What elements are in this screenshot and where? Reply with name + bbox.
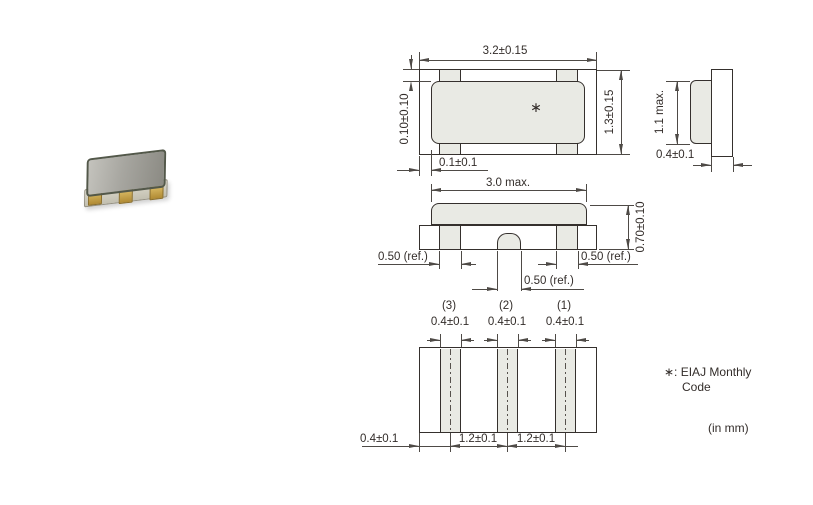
bottom-view-pad1-width-dim: 0.4±0.1 xyxy=(539,316,591,329)
bottom-view-pad3-width-dim: 0.4±0.1 xyxy=(424,316,476,329)
arrow-up-icon xyxy=(409,81,413,91)
arrow-right-icon xyxy=(409,168,419,172)
drawing-canvas: 3.2±0.15 ∗ 0.10±0.10 0.1±0.1 1.3±0.15 1.… xyxy=(0,0,813,505)
ext-line xyxy=(555,334,556,347)
ext-line xyxy=(597,70,630,71)
centerline xyxy=(507,349,508,431)
ext-line xyxy=(439,251,440,269)
dim-line xyxy=(621,70,622,154)
ext-line xyxy=(497,251,498,291)
terminal-label-2: (2) xyxy=(489,300,523,313)
ext-line xyxy=(666,144,690,145)
top-view-lid xyxy=(431,81,585,144)
ext-line xyxy=(450,433,451,452)
side-view-lid xyxy=(690,80,712,144)
front-view-terminal-right-dim: 0.50 (ref.) xyxy=(581,251,631,264)
front-view-terminal-1 xyxy=(556,226,578,249)
top-view-lid-gap-left-dim: 0.1±0.1 xyxy=(439,157,477,170)
arrow-right-icon xyxy=(701,163,711,167)
ext-line xyxy=(440,334,441,347)
units-note: (in mm) xyxy=(708,421,749,436)
arrow-left-icon xyxy=(431,188,441,192)
ext-line xyxy=(711,157,712,172)
bottom-view-pitch32-dim: 1.2±0.1 xyxy=(452,433,504,446)
arrow-right-icon xyxy=(546,262,556,266)
arrow-right-icon xyxy=(587,58,597,62)
arrow-right-icon xyxy=(409,444,419,448)
front-view-lid xyxy=(431,203,587,225)
component-photo xyxy=(84,148,170,217)
ext-line xyxy=(431,150,432,176)
side-view-height-dim: 1.1 max. xyxy=(654,90,666,134)
ext-line xyxy=(431,184,432,202)
dim-line xyxy=(362,446,578,447)
arrow-right-icon xyxy=(545,338,555,342)
ext-line xyxy=(599,249,634,250)
terminal-label-3: (3) xyxy=(432,300,466,313)
arrow-up-icon xyxy=(626,205,630,215)
ext-line xyxy=(521,251,522,291)
arrow-right-icon xyxy=(487,338,497,342)
front-view-terminal-left-dim: 0.50 (ref.) xyxy=(378,251,428,264)
marking-note-line1: ∗: EIAJ Monthly xyxy=(664,365,751,380)
marking-asterisk: ∗ xyxy=(526,101,546,114)
arrow-right-icon xyxy=(430,338,440,342)
bottom-view-edge-dim: 0.4±0.1 xyxy=(360,433,398,446)
arrow-right-icon xyxy=(576,188,586,192)
arrow-left-icon xyxy=(576,338,586,342)
arrow-left-icon xyxy=(461,262,471,266)
ext-line xyxy=(586,184,587,202)
ext-line xyxy=(497,334,498,347)
arrow-left-icon xyxy=(518,338,528,342)
top-view-height-dim: 1.3±0.15 xyxy=(604,90,616,135)
arrow-right-icon xyxy=(487,287,497,291)
arrow-up-icon xyxy=(619,70,623,80)
front-view-lid-width-dim: 3.0 max. xyxy=(448,177,568,190)
arrow-left-icon xyxy=(733,163,743,167)
arrow-down-icon xyxy=(409,59,413,69)
marking-note-line2: Code xyxy=(682,380,711,395)
side-view-thickness-dim: 0.4±0.1 xyxy=(656,149,694,162)
top-view-width-dim: 3.2±0.15 xyxy=(440,45,570,58)
ext-line xyxy=(507,433,508,452)
ext-line xyxy=(597,154,630,155)
arrow-up-icon xyxy=(675,81,679,91)
bottom-view-pitch21-dim: 1.2±0.1 xyxy=(510,433,562,446)
ext-line xyxy=(419,156,420,176)
bottom-view-pad2-width-dim: 0.4±0.1 xyxy=(481,316,533,329)
arrow-down-icon xyxy=(619,144,623,154)
front-view-terminal-2 xyxy=(497,233,521,249)
centerline xyxy=(450,349,451,431)
front-view-terminal-center-dim: 0.50 (ref.) xyxy=(524,275,574,288)
ext-line xyxy=(565,433,566,452)
arrow-down-icon xyxy=(626,239,630,249)
ext-line xyxy=(578,251,579,269)
front-view-height-dim: 0.70±0.10 xyxy=(635,201,647,252)
ext-line xyxy=(556,251,557,269)
arrow-right-icon xyxy=(429,262,439,266)
front-view-terminal-3 xyxy=(439,226,461,249)
terminal-label-1: (1) xyxy=(547,300,581,313)
centerline xyxy=(565,349,566,431)
dim-line xyxy=(419,60,597,61)
top-view-lid-gap-top-dim: 0.10±0.10 xyxy=(399,93,411,144)
arrow-left-icon xyxy=(461,338,471,342)
dim-line xyxy=(431,190,586,191)
ext-line xyxy=(403,81,431,82)
side-view-substrate xyxy=(711,69,733,157)
ext-line xyxy=(403,69,419,70)
ext-line xyxy=(461,251,462,269)
arrow-down-icon xyxy=(675,134,679,144)
arrow-left-icon xyxy=(419,58,429,62)
ext-line xyxy=(419,433,420,452)
